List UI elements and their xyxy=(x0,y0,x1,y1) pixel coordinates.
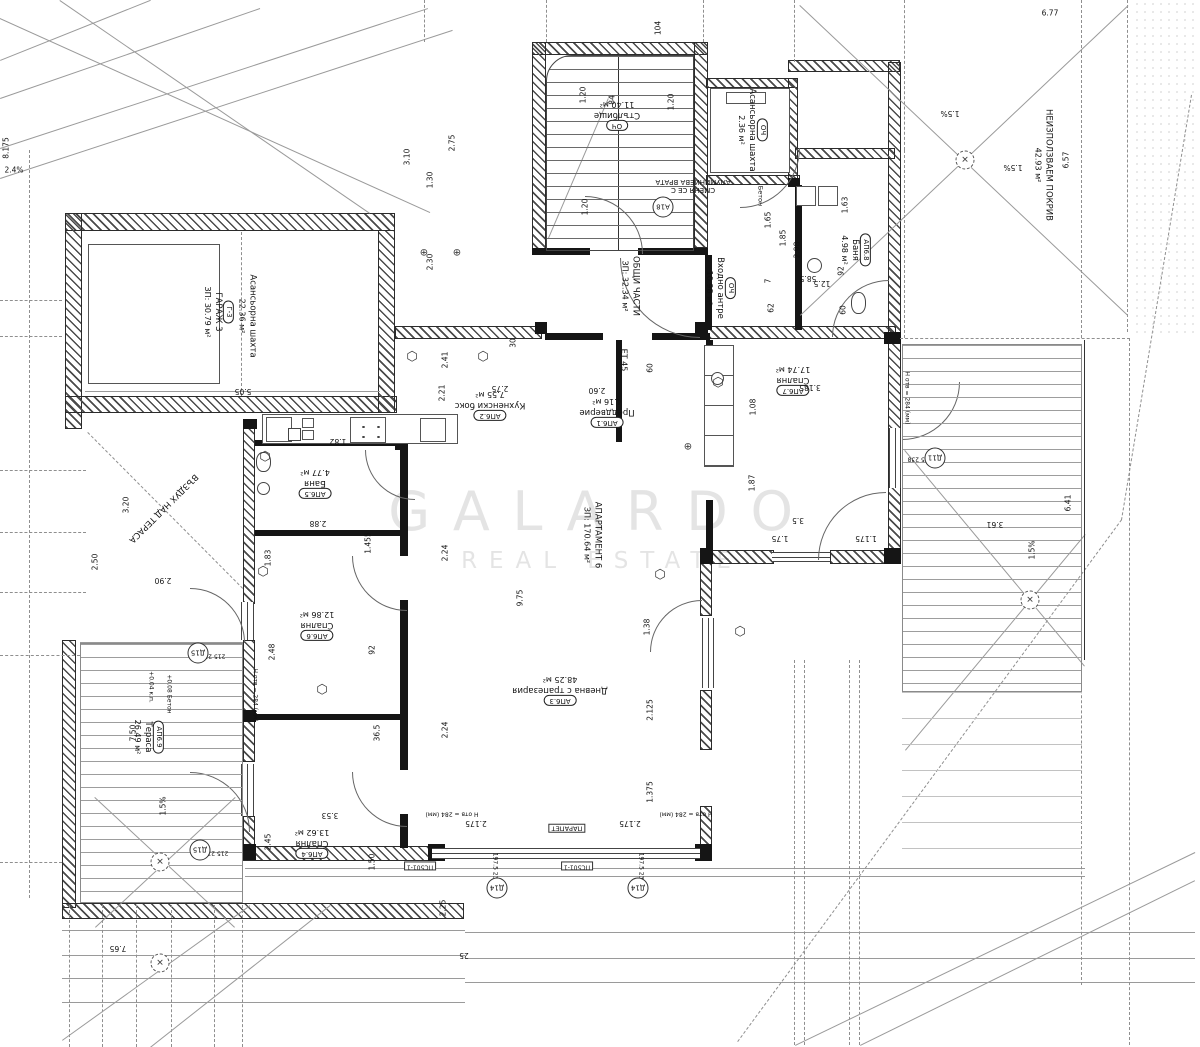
wall-segment xyxy=(400,600,408,770)
bg-line xyxy=(900,338,1130,339)
level-benchmark-icon: ⊕ xyxy=(684,442,692,453)
room-area: 22.36 м² xyxy=(237,274,247,357)
roof-drain-icon: ✕ xyxy=(151,853,170,872)
wall-segment xyxy=(700,690,712,750)
room-name: Входно антре xyxy=(715,257,725,319)
bg-line xyxy=(171,905,172,1047)
dimension-label: 2.24 xyxy=(441,722,449,739)
roof-drain-icon: ✕ xyxy=(1021,591,1040,610)
dimension-label: 3.10 xyxy=(403,149,411,166)
bg-line xyxy=(245,876,1085,877)
wall-segment xyxy=(795,148,895,159)
room-name: Кухненски бокс xyxy=(455,400,526,410)
bg-line xyxy=(0,532,86,533)
level-benchmark-icon: ⊕ xyxy=(453,248,461,259)
room-label: НЕИЗПОЛЗВАЕМ ПОКРИВ42.93 м² xyxy=(1033,109,1054,221)
annotation-label: ПАРАПЕТ xyxy=(549,823,586,832)
wall-type-hexagon-icon: ⬡ xyxy=(477,350,488,365)
bg-line xyxy=(424,0,425,42)
room-label: АПАРТАМЕНТ 6ЗП: 170.64 м² xyxy=(582,502,603,569)
dimension-label: 8.175 xyxy=(2,137,10,158)
bg-line xyxy=(860,880,1195,1046)
dimension-label: 1.5% xyxy=(1028,540,1036,559)
wall-type-hexagon-icon: ⬡ xyxy=(406,350,417,365)
room-area: 13.62 м² xyxy=(295,827,330,837)
annotation-label: +0.04 к.п. xyxy=(147,671,154,703)
wall-type-hexagon-icon: ⬡ xyxy=(712,376,723,391)
bg-line xyxy=(0,592,86,593)
dimension-label: 1.5% xyxy=(940,109,959,117)
room-label: ОБЩИ ЧАСТИЗП: 32.34 м² xyxy=(620,256,641,316)
dimension-label: 2.30 xyxy=(426,254,434,271)
wall-segment xyxy=(65,213,395,231)
wall-segment xyxy=(65,396,397,413)
wall-type-hexagon-icon: ⬡ xyxy=(257,565,268,580)
bg-line xyxy=(904,0,905,150)
dimension-label: 1.375 xyxy=(646,781,654,802)
room-area: 42.93 м² xyxy=(1033,109,1043,221)
bg-line xyxy=(102,905,103,1047)
bg-line xyxy=(136,905,137,1047)
room-label: ОЧСтълбище11.40 м² xyxy=(594,99,640,131)
room-label: Асансьорна шахта22.36 м² xyxy=(237,274,258,357)
room-label: АП6.5Баня4.77 м² xyxy=(298,467,331,499)
roof-drain-icon: ✕ xyxy=(151,954,170,973)
dimension-label: 2.50 xyxy=(91,554,99,571)
annotation-label: Н отв = 284 (мм) xyxy=(251,668,258,721)
dimension-label: 12.5 xyxy=(814,279,831,287)
door-arc-icon xyxy=(352,556,407,611)
room-name: ОБЩИ ЧАСТИ xyxy=(630,256,640,316)
bg-line xyxy=(59,0,370,214)
room-name: Дневна с трапезария xyxy=(512,685,607,695)
annotation-label: Н отв = 284 (мм) xyxy=(425,810,478,817)
dimension-label: 3.61 xyxy=(987,520,1004,528)
dimension-label: 1.08 xyxy=(749,399,757,416)
washer-icon xyxy=(818,186,838,206)
dimension-label: 3.53 xyxy=(322,811,339,819)
dimension-label: 3.20 xyxy=(122,497,130,514)
dimension-label: 2.175 xyxy=(465,819,486,827)
dimension-label: 6.77 xyxy=(1042,9,1059,17)
dimension-label: 2.75 xyxy=(448,135,456,152)
floor-plan-canvas: GALARDO REAL ESTATE ✕✕✕✕⬡⬡⬡⬡⬡⬡⬡⬡⊕⊕⊕ОЧСтъ… xyxy=(0,0,1200,1047)
bg-line xyxy=(69,905,70,1047)
room-tag: АП6.5 xyxy=(298,488,331,499)
room-area: 7.55 м² xyxy=(455,389,526,399)
wall-segment xyxy=(62,903,464,919)
dimension-label: 62 xyxy=(767,303,775,313)
wall-segment xyxy=(706,78,798,88)
dimension-label: 1.20 xyxy=(581,199,589,216)
room-area: 10.98 м² xyxy=(704,257,714,319)
dimension-label: 2.98 xyxy=(793,242,801,259)
bg-line xyxy=(62,978,465,979)
dimension-label: 25 xyxy=(459,951,469,959)
room-name: Асансьорна шахта xyxy=(247,274,257,357)
dimension-label: 2.125 xyxy=(646,699,654,720)
room-name: Преддверие xyxy=(579,407,634,417)
dimension-label: 2.75 xyxy=(492,384,509,392)
wall-segment xyxy=(243,844,256,860)
room-name: Стълбище xyxy=(594,110,640,120)
stove-icon xyxy=(350,417,386,443)
room-tag: АП6.9 xyxy=(153,720,164,753)
basin-icon xyxy=(257,482,270,495)
dimension-label: 1.5% xyxy=(159,796,167,815)
room-area: 2.36 м² xyxy=(736,88,746,171)
room-tag: АП6.6 xyxy=(300,630,333,641)
wall-type-hexagon-icon: ⬡ xyxy=(734,625,745,640)
dimension-label: 60 xyxy=(646,363,654,373)
dimension-label: 1.20 xyxy=(579,87,587,104)
room-name: Тераса xyxy=(143,722,153,753)
bg-line xyxy=(85,391,380,392)
annotation-label: +0.08 Бетон xyxy=(165,674,172,713)
dimension-label: 2.90 xyxy=(155,576,172,584)
annotation-label: Н отв = 284 (мм) xyxy=(659,810,712,817)
bg-line xyxy=(0,336,62,337)
room-tag: АП6.2 xyxy=(473,410,506,421)
opening-mark: Д14 xyxy=(487,878,508,899)
room-label: ОЧАсансьорна шахта2.36 м² xyxy=(736,88,768,171)
wall-segment xyxy=(243,419,257,429)
bg-line xyxy=(214,905,215,1047)
wall-segment xyxy=(255,530,401,536)
room-area: 4.16 м² xyxy=(579,396,634,406)
room-area: ЗП: 170.64 м² xyxy=(582,502,592,569)
room-name: Спалня xyxy=(301,620,334,630)
dimension-label: 92 xyxy=(837,266,845,276)
wall-segment xyxy=(888,62,901,338)
washer-icon xyxy=(288,428,301,441)
dimension-label: 2.175 xyxy=(619,819,640,827)
dimension-label: 5.05 xyxy=(235,387,252,395)
wall-segment xyxy=(255,714,405,720)
door-arc-icon xyxy=(818,492,886,560)
wall-segment xyxy=(700,548,713,564)
bg-line xyxy=(62,1002,465,1003)
room-area: 17.74 м² xyxy=(776,364,811,374)
bg-line xyxy=(150,905,331,1047)
room-label: АП6.3Дневна с трапезария48.25 м² xyxy=(512,674,607,706)
room-label: Г-3ГАРАЖ 3ЗП: 30.79 м² xyxy=(202,286,234,337)
wall-segment xyxy=(788,60,900,72)
dimension-label: 1.83 xyxy=(264,550,272,567)
dimension-label: 2.24 xyxy=(441,545,449,562)
room-area: ЗП: 32.34 м² xyxy=(620,256,630,316)
dimension-label: 9.75 xyxy=(516,590,524,607)
wall-segment xyxy=(545,333,603,340)
wall-segment xyxy=(712,550,774,564)
bg-line xyxy=(794,660,795,1045)
annotation-label: Бетон xyxy=(756,186,763,206)
room-area: 12.86 м² xyxy=(300,609,335,619)
room-tag: АП6.4 xyxy=(295,848,328,859)
bg-line xyxy=(0,18,430,213)
dimension-label: 2.21 xyxy=(438,385,446,402)
sink-icon xyxy=(302,430,314,440)
dishwasher-icon xyxy=(420,418,446,442)
dimension-label: 2.45 xyxy=(264,834,272,851)
bg-line xyxy=(62,930,465,931)
room-tag: ОЧ xyxy=(725,277,736,299)
window-glyph xyxy=(889,428,901,488)
dimension-label: 1.75 xyxy=(772,534,789,542)
room-tag: АП6.3 xyxy=(543,695,576,706)
roof-drain-icon: ✕ xyxy=(956,151,975,170)
wall-segment xyxy=(532,42,708,55)
dimension-label: 7 xyxy=(764,279,772,284)
room-label: АП6.2Кухненски бокс7.55 м² xyxy=(455,389,526,421)
dimension-label: 6.57 xyxy=(1062,152,1070,169)
bg-line xyxy=(0,300,62,301)
annotation-label: ПС501-1 xyxy=(404,862,436,871)
bg-line xyxy=(242,905,243,1047)
dimension-label: 1.50 xyxy=(368,854,376,871)
dimension-label: 1.63 xyxy=(841,197,849,214)
dimension-label: 7.50 xyxy=(129,725,137,742)
room-tag: ОЧ xyxy=(606,120,628,131)
terrace-decking xyxy=(902,692,1082,852)
sink-icon xyxy=(302,418,314,428)
stipple-texture xyxy=(1133,0,1199,334)
dimension-label: 84 xyxy=(608,95,616,105)
room-name: Асансьорна шахта xyxy=(747,88,757,171)
dimension-label: 1.85 xyxy=(779,230,787,247)
window-glyph xyxy=(702,618,714,688)
room-area: 48.25 м² xyxy=(512,674,607,684)
room-name: Баня xyxy=(304,478,326,488)
bg-line xyxy=(465,958,1195,959)
bg-line xyxy=(62,905,251,1041)
room-name: ГАРАЖ 3 xyxy=(213,292,223,331)
bg-line xyxy=(0,862,62,863)
wardrobe-icon xyxy=(704,345,734,467)
dimension-label: 92 xyxy=(368,645,376,655)
dimension-label: 1.38 xyxy=(643,619,651,636)
room-name: АПАРТАМЕНТ 6 xyxy=(592,502,602,569)
dimension-label: 1.175 xyxy=(855,534,876,542)
bg-line xyxy=(0,655,80,656)
room-area: 11.40 м² xyxy=(594,99,640,109)
garage-shaft-outline xyxy=(88,244,220,384)
room-label: АП6.8Баня4.98 м² xyxy=(839,233,871,266)
dimension-label: 2.48 xyxy=(268,644,276,661)
wall-segment xyxy=(243,424,255,604)
room-tag: ОЧ xyxy=(757,119,768,141)
bg-line xyxy=(546,0,547,42)
room-label: ОЧВходно антре10.98 м² xyxy=(704,257,736,319)
bg-line xyxy=(904,150,905,338)
bg-line xyxy=(29,150,30,898)
wall-segment xyxy=(395,326,542,339)
wall-segment xyxy=(378,230,395,413)
door-arc-icon xyxy=(352,772,407,827)
bg-line xyxy=(1127,0,1128,332)
wall-segment xyxy=(62,640,76,908)
dimension-label: 1.82 xyxy=(330,437,347,445)
room-name: Баня xyxy=(850,239,860,261)
bg-line xyxy=(1084,340,1085,660)
room-label: АП6.4Спалня13.62 м² xyxy=(295,827,330,859)
wall-type-hexagon-icon: ⬡ xyxy=(316,683,327,698)
basin-icon xyxy=(807,258,822,273)
room-name: Спалня xyxy=(296,838,329,848)
dimension-label: 1.30 xyxy=(426,172,434,189)
bg-line xyxy=(804,660,805,1045)
dimension-label: 2.88 xyxy=(310,519,327,527)
window-glyph xyxy=(432,848,700,859)
door-arc-icon xyxy=(650,600,702,652)
annotation-label: ПС501-1 xyxy=(561,862,593,871)
dimension-label: 1.65 xyxy=(764,212,772,229)
room-area: 4.98 м² xyxy=(839,233,849,266)
room-name: НЕИЗПОЛЗВАЕМ ПОКРИВ xyxy=(1043,109,1053,221)
dimension-label: 30 xyxy=(509,338,517,348)
opening-mark: Д11 xyxy=(925,448,946,469)
door-arc-icon xyxy=(190,588,245,643)
room-tag: Г-3 xyxy=(223,300,234,323)
annotation-label: Н отв = 284 (мм) xyxy=(903,371,910,424)
bg-line xyxy=(703,0,704,42)
bg-line xyxy=(465,982,1195,983)
dimension-label: 3.5 xyxy=(792,516,804,524)
bg-line xyxy=(849,660,850,1045)
dimension-label: 2.25 xyxy=(439,900,447,917)
annotation-label: ЕТ 45 xyxy=(619,349,628,372)
bg-line xyxy=(794,0,795,62)
dimension-label: 7.65 xyxy=(110,944,127,952)
terrace-decking xyxy=(902,344,1082,692)
dimension-label: 3.185 xyxy=(799,383,820,391)
room-label: АП6.1Преддверие4.16 м² xyxy=(579,396,634,428)
bg-line xyxy=(0,470,86,471)
annotation-label: СМЕНЯ СЕ С АЛУМИНИЕВА ВРАТА xyxy=(655,178,730,194)
room-tag: АП6.1 xyxy=(590,417,623,428)
dimension-label: 1.5% xyxy=(1003,163,1022,171)
dimension-label: 1.20 xyxy=(667,94,675,111)
wall-segment xyxy=(535,322,547,334)
opening-mark: Д15 xyxy=(188,643,209,664)
dimension-label: 6.41 xyxy=(1064,495,1072,512)
bg-line xyxy=(0,8,428,149)
wall-type-hexagon-icon: ⬡ xyxy=(259,450,270,465)
room-tag: АП6.8 xyxy=(860,233,871,266)
bg-line xyxy=(1081,0,1082,338)
room-label: АП6.6Спалня12.86 м² xyxy=(300,609,335,641)
room-area: 4.77 м² xyxy=(298,467,331,477)
bg-line xyxy=(859,660,860,1045)
dimension-label: 2.41 xyxy=(441,352,449,369)
opening-mark: А18 xyxy=(653,197,674,218)
bg-line xyxy=(0,30,452,179)
opening-mark: Д14 xyxy=(628,878,649,899)
dimension-label: 60 xyxy=(839,305,847,315)
bg-line xyxy=(0,8,260,99)
wall-segment xyxy=(694,42,708,248)
opening-mark: Д15 xyxy=(190,840,211,861)
wall-type-hexagon-icon: ⬡ xyxy=(654,568,665,583)
wall-segment xyxy=(884,548,901,564)
dimension-label: 104 xyxy=(654,21,662,35)
bg-line xyxy=(1129,338,1130,1045)
dimension-label: 2.4% xyxy=(4,166,23,174)
door-arc-icon xyxy=(365,450,415,500)
dimension-label: 2.60 xyxy=(589,386,606,394)
dimension-label: 1.455 xyxy=(364,532,372,553)
dimension-label: 36.5 xyxy=(373,725,381,742)
room-area: ЗП: 30.79 м² xyxy=(202,286,212,337)
washer-icon xyxy=(796,186,816,206)
dimension-label: 1.87 xyxy=(748,475,756,492)
wall-segment xyxy=(532,42,546,254)
